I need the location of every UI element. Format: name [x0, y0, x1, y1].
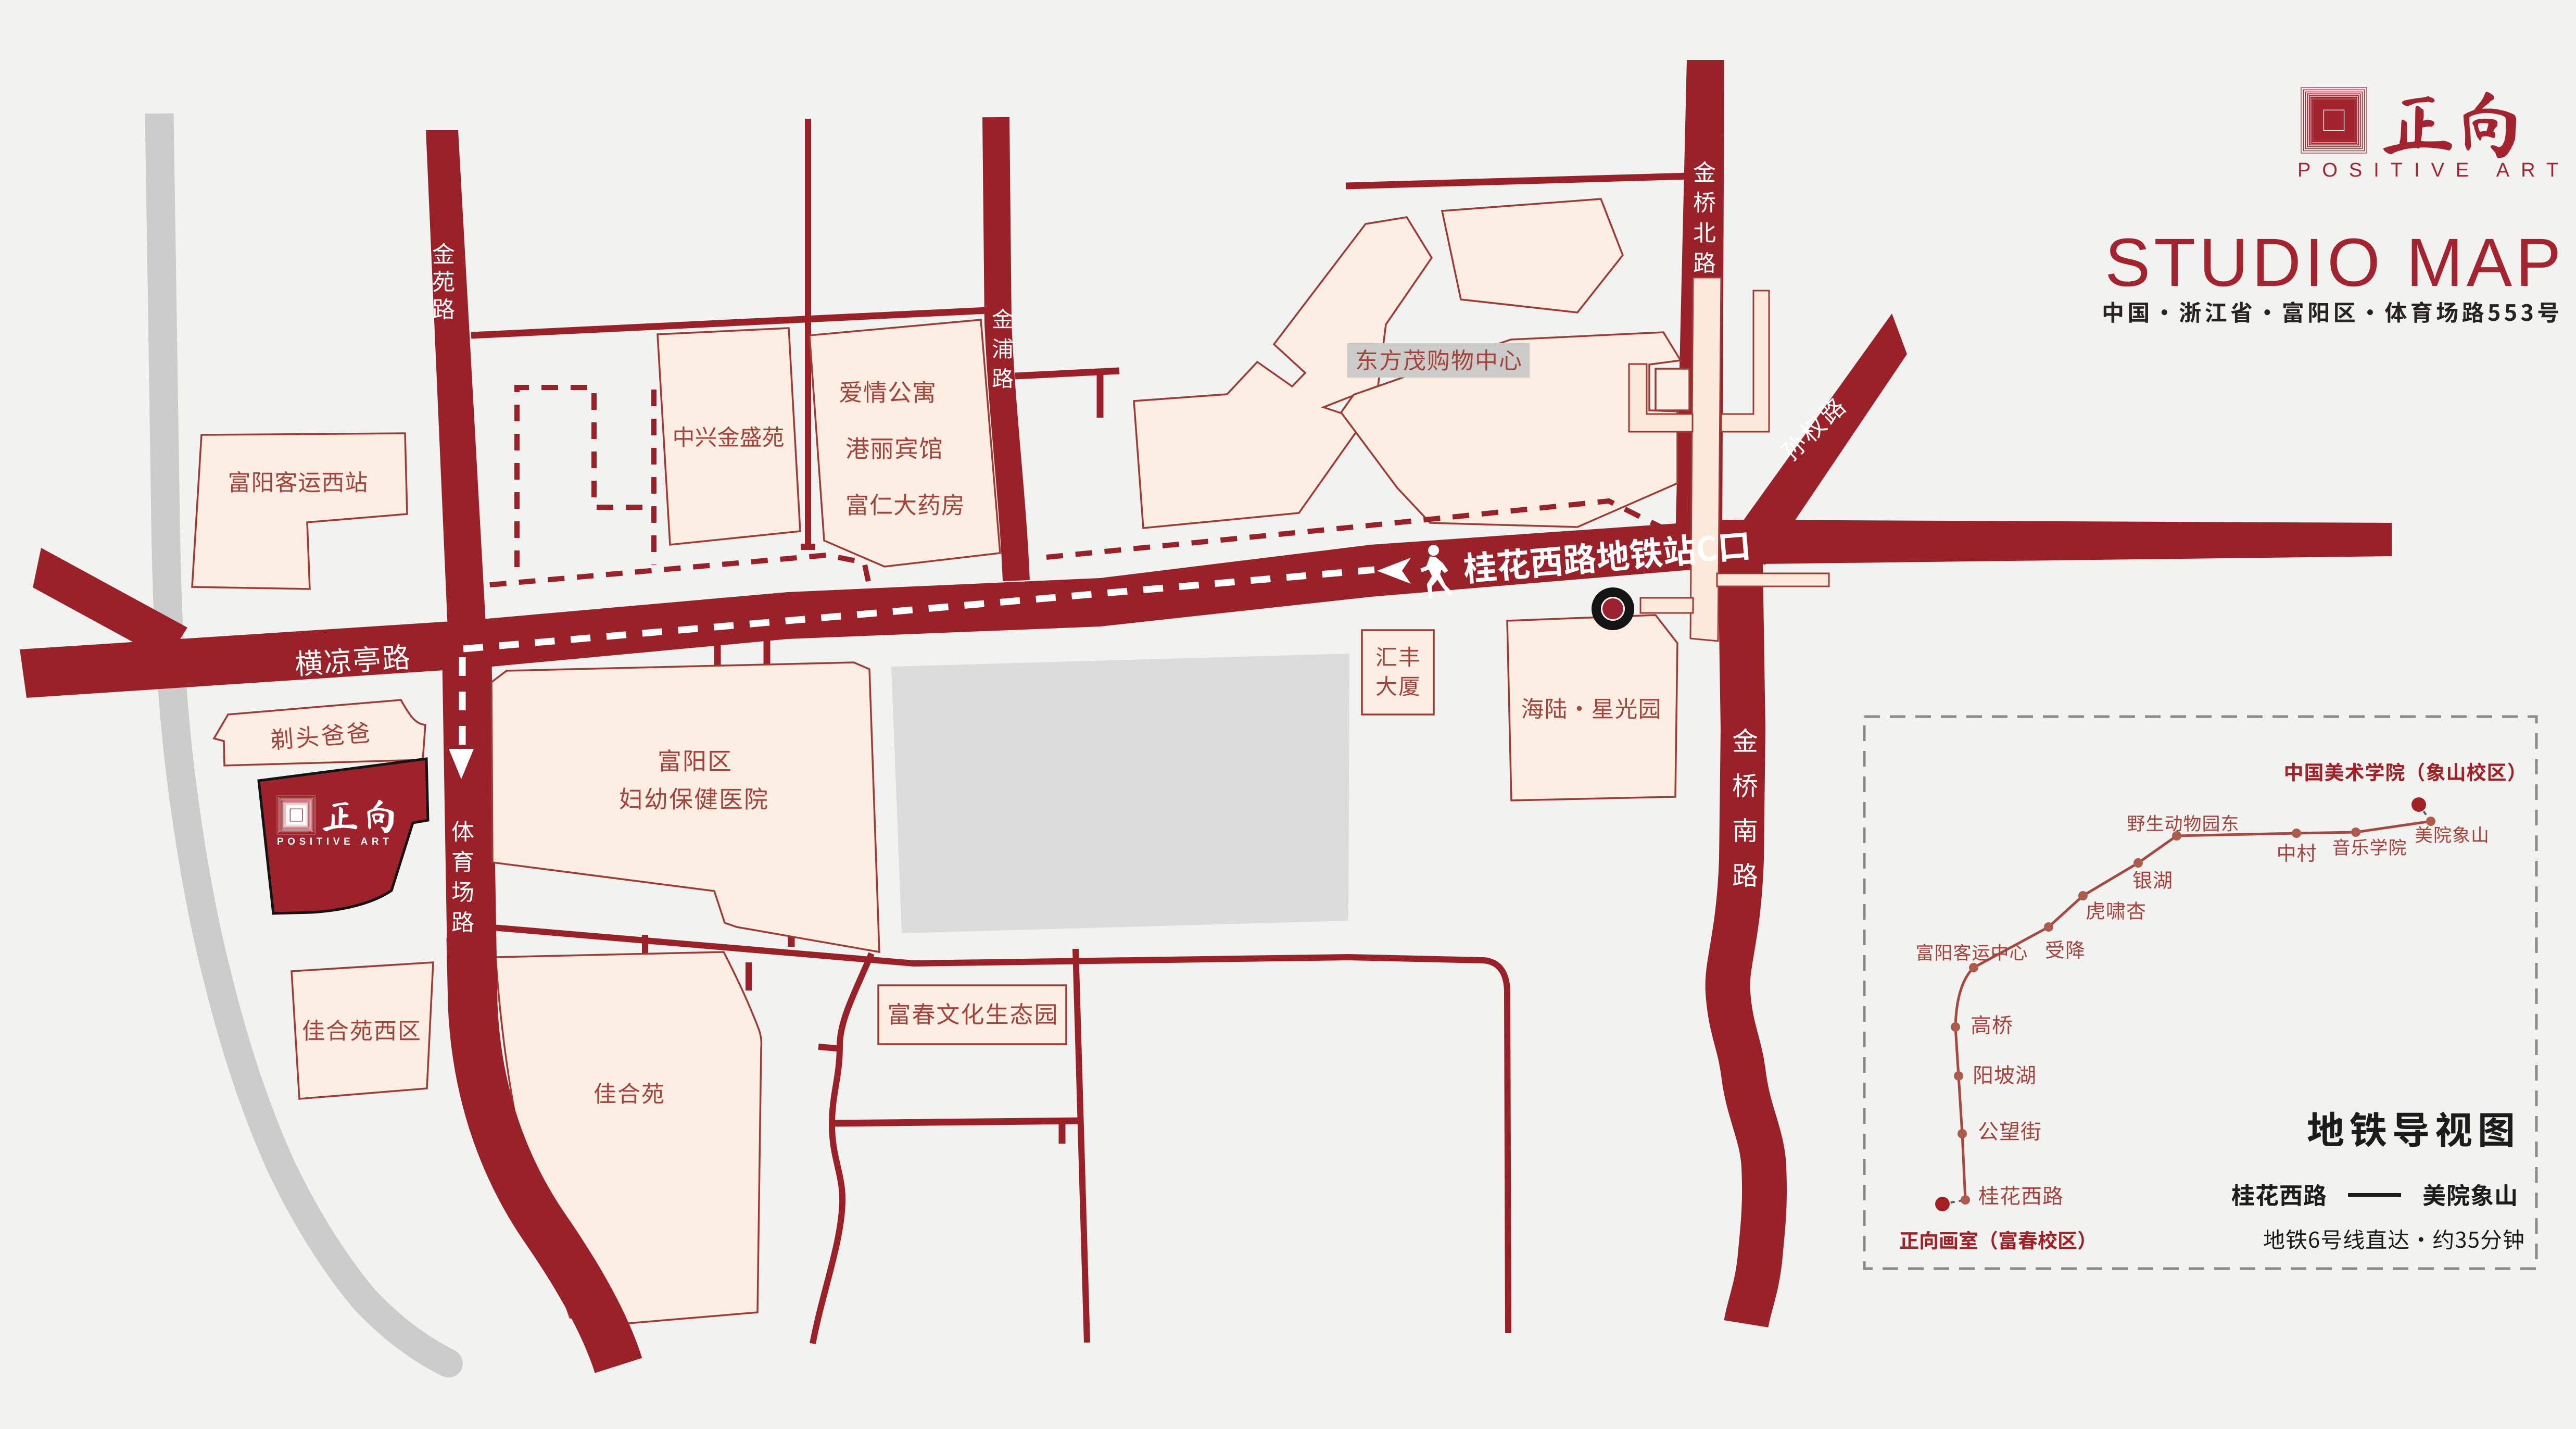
svg-text:POSITIVE ART: POSITIVE ART — [2297, 159, 2570, 181]
svg-text:STUDIO MAP: STUDIO MAP — [2105, 224, 2565, 300]
svg-text:POSITIVE ART: POSITIVE ART — [277, 836, 393, 847]
